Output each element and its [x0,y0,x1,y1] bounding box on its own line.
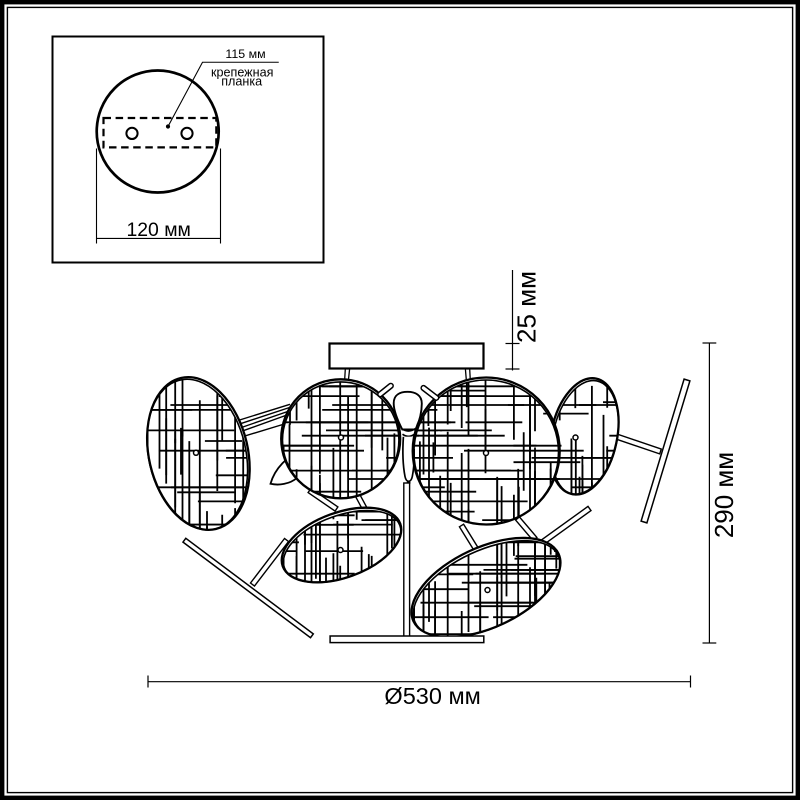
svg-text:115 мм: 115 мм [225,47,265,61]
svg-text:планка: планка [221,75,262,89]
svg-text:290 мм: 290 мм [709,452,739,538]
svg-text:120 мм: 120 мм [126,219,190,241]
svg-text:Ø530 мм: Ø530 мм [384,683,480,709]
svg-text:25 мм: 25 мм [512,271,542,343]
